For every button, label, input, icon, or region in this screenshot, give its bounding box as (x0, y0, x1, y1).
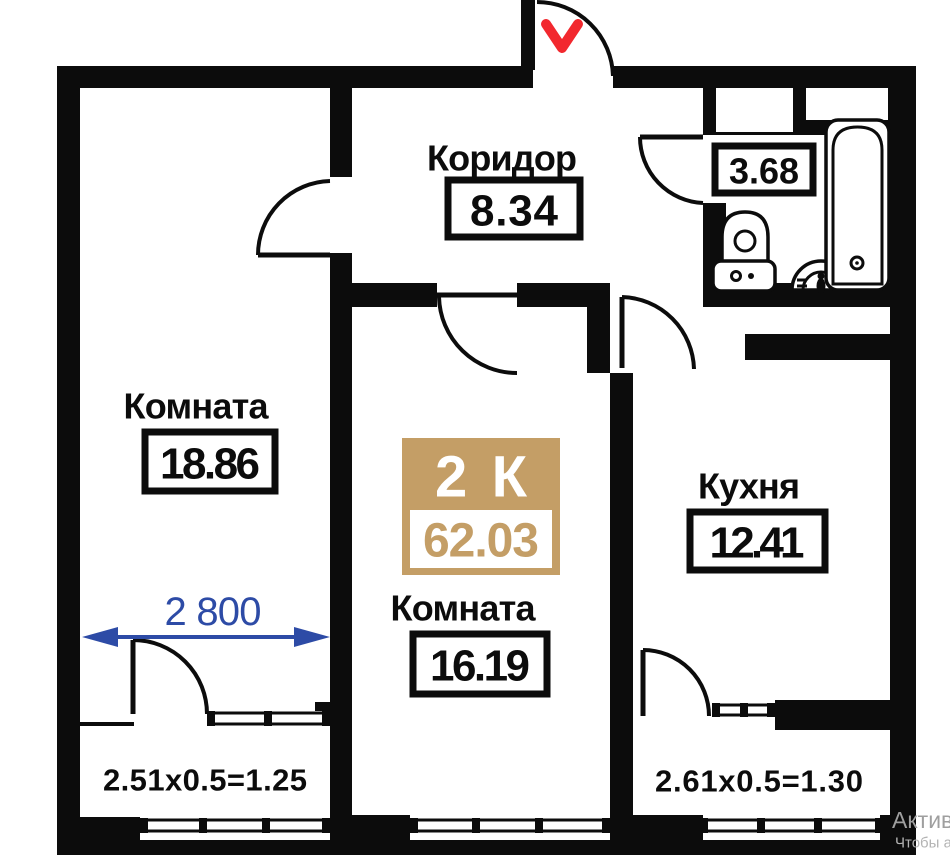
corridor-area: 8.34 (470, 187, 559, 236)
toilet-icon (713, 212, 775, 291)
wall-entry-spur (521, 0, 535, 70)
wall-left-outer (57, 66, 80, 855)
kitchen-door-arc (622, 297, 694, 369)
corridor-name: Коридор (427, 138, 577, 179)
watermark: Актива Чтобы а (892, 807, 950, 852)
apartment-badge: 2 К 62.03 (402, 438, 560, 575)
window-balcony-right (700, 818, 883, 833)
room-left-door-arc (258, 181, 330, 255)
dimension-annotation: 2 800 (82, 590, 330, 647)
bath-niche-left (716, 88, 793, 132)
walls (57, 0, 916, 855)
entry-door-arc (537, 2, 613, 76)
window-kitchen-balcony (712, 703, 775, 717)
balcony-left-formula: 2.51x0.5=1.25 (103, 763, 307, 798)
window-room-left (207, 711, 330, 726)
wall-top-right (613, 66, 893, 88)
kitchen-area: 12.41 (710, 519, 805, 568)
room-center-area: 16.19 (430, 642, 530, 691)
watermark-line1: Актива (892, 807, 950, 833)
balcony-right-formula: 2.61x0.5=1.30 (655, 764, 863, 799)
balcony-left-door-arc (133, 640, 207, 714)
entrance-chevron-icon (546, 24, 578, 48)
wall-stub-center-bottom (352, 815, 410, 840)
floor-plan-canvas: Коридор 8.34 Комната 18.86 Комната 16.19… (0, 0, 950, 855)
wall-room-left-upper (330, 88, 352, 177)
wall-top-left (57, 66, 533, 88)
kitchen-name: Кухня (698, 466, 800, 507)
floor-plan: Коридор 8.34 Комната 18.86 Комната 16.19… (0, 0, 950, 855)
wall-room-kitchen-divider (610, 373, 633, 843)
wall-balcony-left-corner (80, 817, 140, 843)
wall-bottom-outer (57, 840, 916, 855)
badge-type: 2 К (435, 445, 528, 510)
badge-total-area: 62.03 (423, 515, 539, 568)
room-center-door-arc (439, 297, 517, 373)
watermark-line2: Чтобы а (895, 835, 950, 852)
room-left-name: Комната (124, 386, 270, 427)
bathtub-icon (826, 120, 889, 290)
room-left-area: 18.86 (160, 440, 260, 489)
window-room-center (410, 818, 610, 833)
bathroom-area: 3.68 (729, 151, 799, 192)
room-center-name: Комната (391, 588, 537, 629)
window-balcony-left (140, 818, 330, 833)
wall-room-left-lower (330, 253, 352, 843)
wall-corridor-seg1 (352, 283, 437, 307)
dimension-label: 2 800 (165, 590, 262, 634)
wall-stub-right-bottom (633, 815, 703, 840)
bath-niche-right (806, 88, 888, 120)
wall-kitchen-balcony (775, 700, 890, 730)
wall-kitchen-top (745, 334, 890, 360)
bathroom-door-arc (640, 137, 703, 203)
balcony-right-door-arc (643, 650, 709, 716)
wall-right-outer (890, 66, 916, 855)
wall-passage-upper (587, 283, 610, 373)
